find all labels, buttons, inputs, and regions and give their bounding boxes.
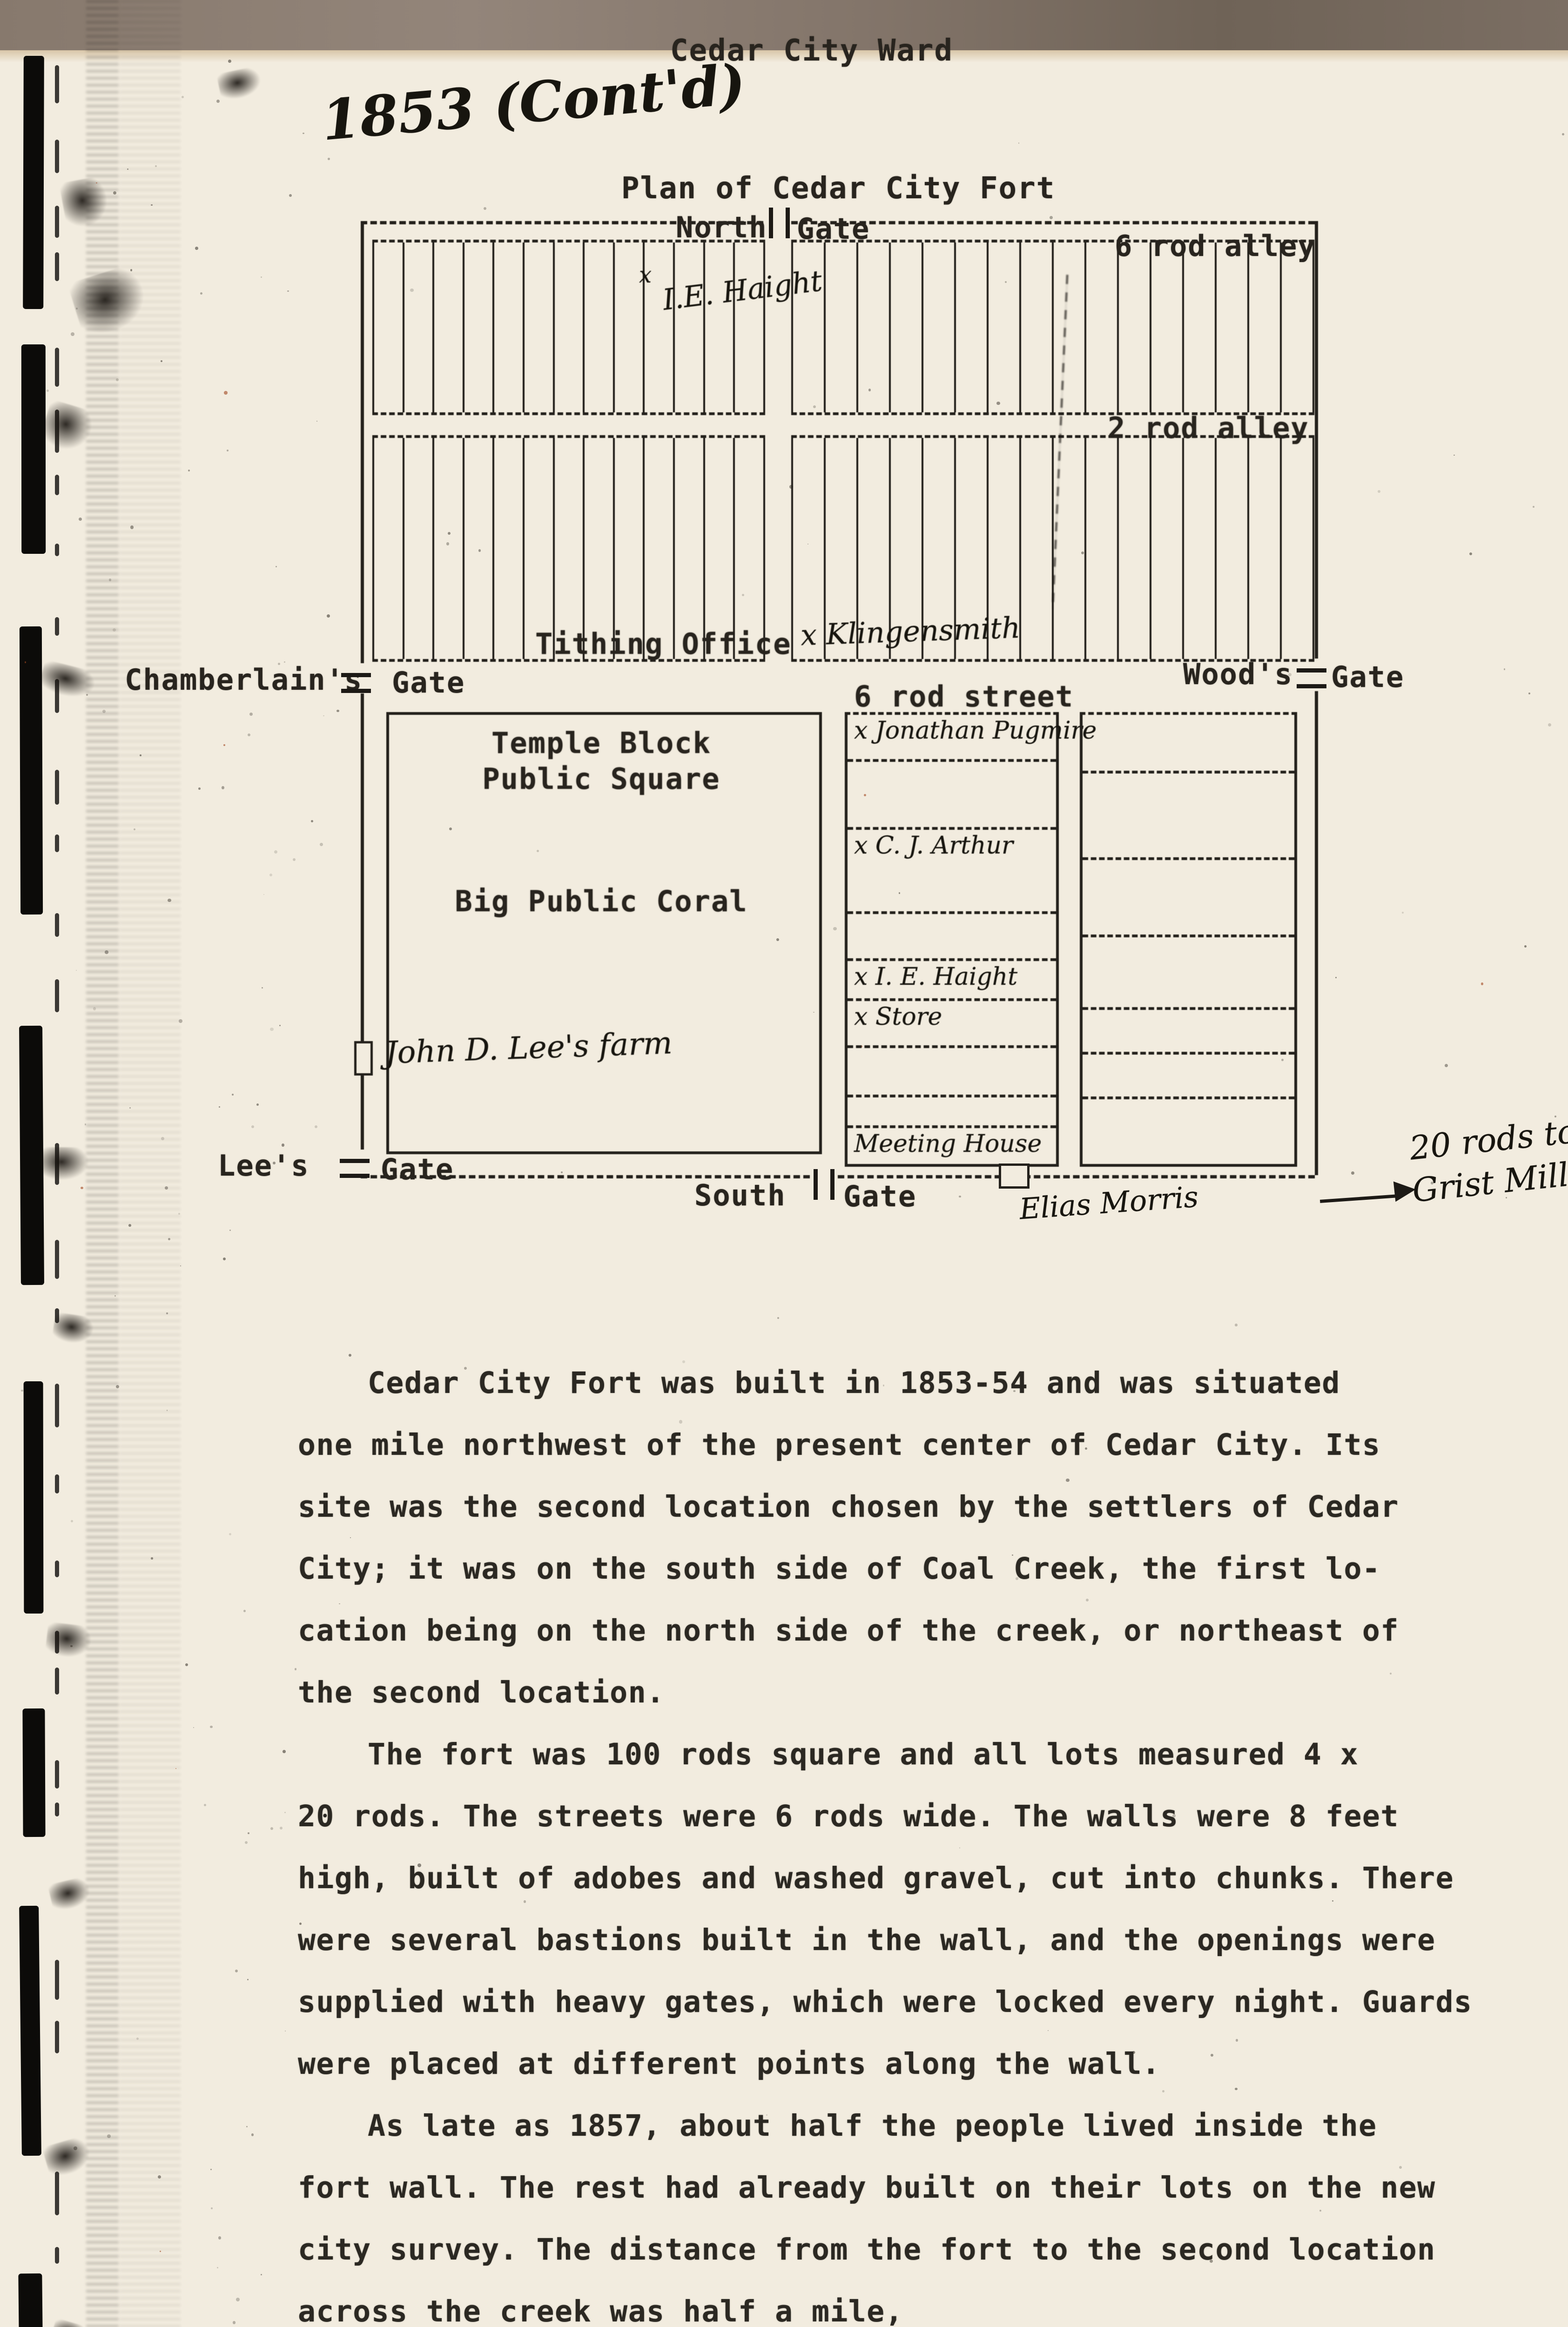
speck (217, 2267, 218, 2268)
speck (256, 1103, 259, 1106)
fort-lot (1184, 242, 1217, 412)
binding-dash (55, 2247, 59, 2264)
speck (323, 715, 324, 716)
speck (193, 1727, 194, 1728)
fort-lot (1054, 242, 1086, 412)
chamberlains-gate-icon (341, 673, 371, 677)
speck (229, 1533, 231, 1535)
binding-dash (55, 206, 59, 238)
fort-lot (1151, 438, 1184, 659)
speck (232, 1094, 234, 1096)
lot-row: x Jonathan Pugmire (848, 715, 1056, 762)
woods-gate-label: Wood's (1183, 657, 1293, 691)
speck (96, 182, 97, 183)
fort-lot (1151, 242, 1184, 412)
speck (285, 2031, 286, 2031)
speck (168, 899, 171, 902)
binding-bar (22, 1708, 45, 1837)
speck (1504, 668, 1506, 670)
ink-smudge (45, 1622, 92, 1660)
body-text-line: were placed at different points along th… (298, 2036, 1489, 2098)
speck (223, 1258, 226, 1260)
binding-dash (55, 1384, 59, 1427)
speck (261, 2274, 262, 2275)
speck (211, 2207, 212, 2209)
speck (227, 450, 229, 451)
fort-lot (1119, 242, 1151, 412)
binding-dash (55, 1960, 59, 2000)
binding-dash (55, 1560, 59, 1577)
speck (293, 858, 296, 861)
speck (1562, 133, 1564, 135)
speck (248, 1832, 249, 1834)
speck (223, 744, 225, 746)
binding-bar (23, 56, 44, 309)
body-text-line: The fort was 100 rods square and all lot… (298, 1727, 1489, 1789)
fort-lot (555, 242, 585, 412)
speck (328, 158, 330, 160)
binding-bar (19, 2273, 45, 2327)
speck (113, 191, 116, 195)
speck (1235, 1324, 1238, 1326)
binding-dash (55, 913, 59, 937)
speck (233, 2321, 236, 2324)
lees-gate-icon (340, 1159, 370, 1163)
binding-dash (55, 348, 59, 387)
speck (336, 710, 339, 712)
grist-mill-arrow (1320, 1194, 1398, 1203)
north-gate-label-left: North (676, 210, 767, 244)
speck (128, 1224, 131, 1227)
body-text: Cedar City Fort was built in 1853-54 and… (298, 1355, 1489, 2327)
fort-lot (1086, 242, 1119, 412)
speck (107, 2134, 111, 2138)
north-gate-icon (769, 208, 773, 238)
speck (1533, 506, 1534, 508)
speck (279, 1025, 281, 1026)
speck (167, 1410, 168, 1411)
fort-lot (1217, 438, 1249, 659)
speck (140, 754, 141, 756)
speck (1454, 455, 1455, 456)
lot-row (848, 762, 1056, 830)
speck (198, 787, 201, 790)
speck (158, 2175, 161, 2179)
speck (200, 292, 202, 295)
fort-lot (1021, 242, 1054, 412)
speck (777, 1317, 779, 1319)
speck (1481, 982, 1484, 985)
speck (263, 894, 265, 895)
speck (151, 1557, 153, 1559)
fort-lot (494, 242, 525, 412)
speck (47, 390, 49, 392)
fort-lot (494, 438, 525, 659)
lot-row (848, 1097, 1056, 1128)
speck (21, 1390, 23, 1392)
fort-lot (858, 242, 891, 412)
speck (283, 1750, 286, 1753)
fort-lot (735, 242, 765, 412)
speck (270, 1827, 273, 1830)
speck (109, 578, 112, 581)
chamberlains-gate-word: Gate (392, 666, 465, 699)
fort-lot (705, 242, 735, 412)
speck (243, 1610, 246, 1612)
speck (222, 786, 225, 789)
lot-row (1083, 715, 1294, 773)
binding-dash (55, 252, 59, 281)
body-text-line: As late as 1857, about half the people l… (298, 2098, 1489, 2160)
fort-lot (826, 242, 858, 412)
ink-smudge (59, 175, 111, 229)
speck (316, 421, 317, 422)
body-text-line: cation being on the north side of the cr… (298, 1603, 1489, 1665)
speck (1528, 693, 1530, 694)
diagram-title: Plan of Cedar City Fort (621, 171, 1055, 206)
speck (105, 950, 108, 954)
speck (235, 1970, 238, 1972)
fort-lot (464, 242, 495, 412)
fort-lot (675, 438, 705, 659)
speck (295, 1668, 296, 1670)
binding-dash (55, 1668, 59, 1695)
speck (270, 1028, 274, 1031)
fort-lot (585, 242, 615, 412)
lees-gate-label: Lee's (218, 1149, 310, 1183)
body-text-line: one mile northwest of the present center… (298, 1417, 1489, 1479)
fort-lot (1119, 438, 1151, 659)
speck (261, 276, 262, 278)
speck (249, 713, 253, 716)
fort-lot (1184, 438, 1217, 659)
fort-lot (1249, 438, 1282, 659)
speck (185, 1663, 188, 1666)
speck (248, 733, 250, 736)
fort-lot (434, 242, 464, 412)
speck (74, 2146, 77, 2150)
speck (269, 874, 272, 876)
body-text-line: city survey. The distance from the fort … (298, 2222, 1489, 2284)
lot-row (1083, 860, 1294, 937)
speck (210, 1726, 213, 1728)
speck (1335, 977, 1337, 978)
speck (236, 2298, 240, 2301)
speck (165, 1186, 168, 1190)
body-text-line: 20 rods. The streets were 6 rods wide. T… (298, 1789, 1489, 1850)
body-text-line: fort wall. The rest had already built on… (298, 2160, 1489, 2222)
tithing-office-label: Tithing Office (535, 627, 792, 661)
speck (155, 165, 157, 167)
fort-lot (464, 438, 495, 659)
binding-shadow-band (86, 0, 119, 2327)
speck (245, 1841, 248, 1844)
body-text-line: supplied with heavy gates, which were lo… (298, 1974, 1489, 2036)
binding-bar (23, 1381, 43, 1614)
speck (315, 1125, 317, 1128)
body-text-line: high, built of adobes and washed gravel,… (298, 1850, 1489, 1912)
speck (1402, 912, 1404, 914)
speck (93, 1007, 96, 1010)
speck (251, 2133, 254, 2136)
speck (178, 1213, 180, 1215)
lot-row: x I. E. Haight (848, 961, 1056, 1001)
speck (1378, 490, 1380, 493)
speck (1548, 723, 1551, 726)
binding-bar (19, 1906, 41, 2156)
speck (282, 1143, 284, 1146)
speck (224, 391, 228, 395)
body-text-line: Cedar City Fort was built in 1853-54 and… (298, 1355, 1489, 1417)
speck (81, 1187, 83, 1189)
ink-smudge (49, 2318, 90, 2327)
binding-dash (55, 475, 59, 495)
binding-dash (55, 544, 59, 557)
speck (182, 96, 184, 98)
ink-smudge (52, 1312, 95, 1345)
binding-dash (55, 979, 59, 1012)
east-wall-lower (1315, 691, 1318, 1175)
fort-lot (923, 242, 956, 412)
fort-lot (374, 438, 404, 659)
fort-lot (1217, 242, 1249, 412)
speck (284, 1812, 286, 1813)
speck (71, 332, 74, 336)
year-annotation: 1853 (Cont'd) (319, 51, 748, 153)
speck (1018, 142, 1019, 143)
speck (228, 60, 231, 63)
fort-lot (404, 242, 435, 412)
binding-bar (20, 626, 43, 915)
north-gate-icon2 (786, 208, 790, 238)
fort-lot (434, 438, 464, 659)
public-square-label: Public Square (386, 762, 816, 796)
speck (229, 1230, 231, 1231)
ink-smudge (40, 1147, 89, 1180)
speck (1351, 1171, 1354, 1175)
speck (327, 614, 330, 618)
east-wall-upper (1315, 221, 1318, 659)
fort-lot (989, 242, 1021, 412)
binding-dash (55, 2172, 59, 2216)
speck (216, 100, 220, 103)
speck (247, 1979, 249, 1980)
fort-lot (735, 438, 765, 659)
speck (116, 1385, 119, 1388)
body-text-line: were several bastions built in the wall,… (298, 1912, 1489, 1974)
speck (218, 2236, 222, 2240)
speck (289, 194, 292, 197)
speck (262, 987, 263, 989)
lot-owner-label: Meeting House (854, 1130, 1042, 1158)
speck (116, 378, 119, 381)
speck (280, 1827, 283, 1829)
west-wall-upper (361, 221, 364, 663)
binding-dash (55, 2021, 59, 2053)
speck (1469, 552, 1472, 555)
south-gate-label-left: South (694, 1178, 786, 1212)
fort-lot (891, 242, 923, 412)
fort-lot (374, 242, 404, 412)
lot-row (1083, 1010, 1294, 1055)
fort-lot (525, 242, 555, 412)
lot-row: x C. J. Arthur (848, 830, 1056, 914)
binding-dash (55, 834, 59, 852)
fort-plan-diagram: 2 rod alley x I.E. Haight Tithing Office… (361, 221, 1315, 1175)
speck (303, 133, 304, 135)
body-text-line: across the creek was half a mile, (298, 2284, 1489, 2327)
speck (246, 2126, 247, 2127)
binding-dash (55, 1474, 59, 1493)
lot-row (848, 914, 1056, 961)
body-text-line: City; it was on the south side of Coal C… (298, 1541, 1489, 1603)
body-text-line: the second location. (298, 1665, 1489, 1727)
ink-smudge (216, 66, 263, 102)
binding-dash (55, 65, 59, 103)
south-gate-icon (814, 1169, 818, 1200)
speck (179, 1019, 182, 1023)
speck (79, 518, 82, 521)
fort-lot (1249, 242, 1282, 412)
fort-lot (585, 438, 615, 659)
lot-row (1083, 937, 1294, 1010)
speck (127, 168, 128, 170)
south-gate-icon2 (830, 1169, 834, 1200)
fort-lot (1282, 242, 1314, 412)
fort-lot (555, 438, 585, 659)
fort-lot (1086, 438, 1119, 659)
body-text-line: site was the second location chosen by t… (298, 1479, 1489, 1541)
north-lots-band1-west (372, 240, 765, 415)
speck (195, 247, 198, 249)
binding-dash (55, 1240, 59, 1279)
lot-row (848, 1048, 1056, 1097)
speck (204, 1804, 206, 1806)
speck (102, 710, 105, 713)
speck (276, 566, 277, 567)
fort-lot (705, 438, 735, 659)
lot-row (1083, 1099, 1294, 1181)
woods-gate-word: Gate (1331, 660, 1404, 694)
speck (76, 970, 77, 971)
fort-lot (956, 242, 989, 412)
speck (1050, 216, 1053, 219)
temple-block-label: Temple Block (386, 726, 816, 760)
chamberlains-gate-label: Chamberlain's (125, 663, 363, 697)
scanned-document-page: Cedar City Ward 1853 (Cont'd) Plan of Ce… (0, 0, 1568, 2327)
lees-gate-word: Gate (381, 1152, 454, 1186)
speck (274, 850, 277, 854)
lot-owner-label: x I. E. Haight (854, 963, 1017, 991)
binding-dash (55, 770, 59, 805)
six-rod-street-label: 6 rod street (854, 679, 1074, 713)
lot-row (1083, 1055, 1294, 1099)
speck (959, 1196, 961, 1198)
six-rod-alley-label: 6 rod alley (1115, 229, 1316, 263)
speck (219, 1106, 220, 1108)
east-lots-west-column: x Jonathan Pugmirex C. J. Arthurx I. E. … (845, 712, 1059, 1167)
west-wall-lower (361, 693, 364, 1150)
lee-farm-marker (354, 1041, 373, 1076)
speck (1524, 945, 1527, 948)
binding-dash (55, 617, 59, 636)
binding-dash (55, 1802, 59, 1816)
lot-row: x Store (848, 1001, 1056, 1048)
chamberlains-gate-icon2 (341, 689, 371, 693)
fort-lot (645, 438, 675, 659)
south-gate-label-right: Gate (843, 1179, 916, 1213)
big-public-coral-label: Big Public Coral (386, 884, 816, 918)
speck (311, 820, 313, 822)
east-lots-east-column (1080, 712, 1297, 1167)
lees-gate-icon2 (340, 1174, 370, 1178)
fort-lot (404, 438, 435, 659)
speck (76, 308, 77, 309)
fort-lot (615, 438, 645, 659)
lot-owner-label: x Jonathan Pugmire (854, 717, 1097, 745)
speck (251, 1125, 254, 1128)
speck (71, 1520, 73, 1522)
speck (210, 2169, 212, 2170)
north-lots-band1-east (791, 240, 1314, 415)
speck (188, 470, 190, 471)
speck (484, 207, 486, 210)
speck (136, 2038, 139, 2040)
binding-bar (21, 344, 46, 554)
speck (130, 525, 134, 529)
fort-lot (1282, 438, 1314, 659)
elias-morris-marker (999, 1163, 1030, 1189)
fort-lot (675, 242, 705, 412)
lot-row (1083, 773, 1294, 860)
binding-dash (55, 1760, 59, 1788)
elias-morris-label: Elias Morris (1018, 1180, 1199, 1226)
fort-lot (1021, 438, 1054, 659)
speck (1445, 1064, 1448, 1068)
north-gate-label-right: Gate (797, 212, 870, 246)
haight-x-mark: x (639, 262, 652, 288)
speck (320, 843, 323, 846)
binding-dash (55, 140, 59, 173)
binding-shadow-band-2 (120, 0, 181, 2327)
woods-gate-icon2 (1297, 684, 1326, 688)
woods-gate-icon (1297, 668, 1326, 673)
fort-lot (525, 438, 555, 659)
lot-owner-label: x C. J. Arthur (854, 832, 1013, 860)
lot-owner-label: x Store (854, 1003, 942, 1031)
speck (287, 290, 289, 292)
